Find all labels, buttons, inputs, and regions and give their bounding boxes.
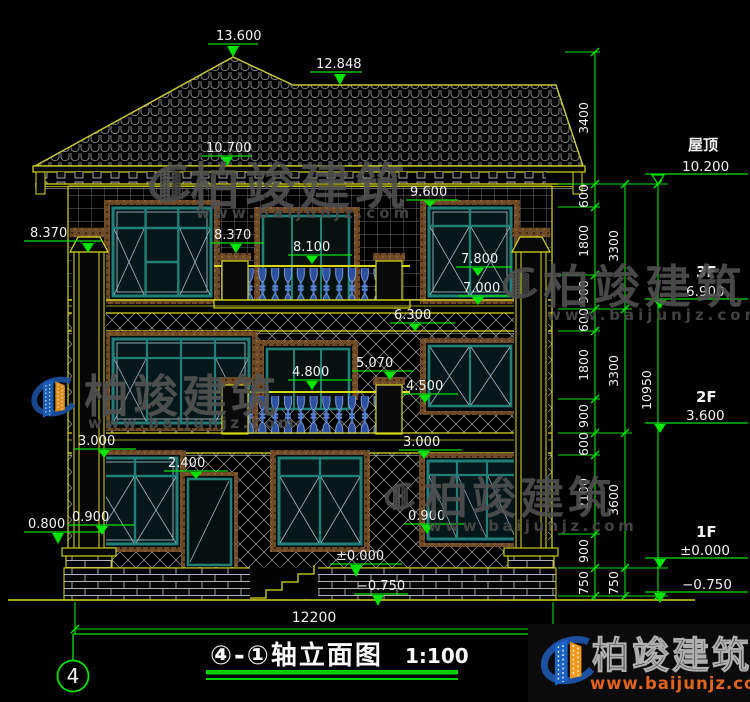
svg-text:3.000: 3.000 xyxy=(403,435,440,450)
svg-text:④-①轴立面图: ④-①轴立面图 xyxy=(210,640,383,671)
svg-text:8.370: 8.370 xyxy=(214,228,251,243)
level-1f: 1F ±0.000 xyxy=(645,523,748,568)
svg-text:0.900: 0.900 xyxy=(72,510,109,525)
svg-text:5.070: 5.070 xyxy=(356,356,393,371)
pedestal-cap-left xyxy=(62,548,116,556)
pier-cap xyxy=(219,253,251,261)
svg-text:1800: 1800 xyxy=(576,349,591,381)
svg-text:10.200: 10.200 xyxy=(682,159,729,175)
svg-text:3300: 3300 xyxy=(606,230,621,262)
overall-width-dimension: 12200 xyxy=(71,602,557,634)
cad-elevation-canvas[interactable]: 13.600 12.848 10.700 8.370 9.600 8.370 8… xyxy=(0,0,750,702)
brand-logo: 柏竣建筑 www.baijunjz.com xyxy=(528,624,750,702)
svg-text:www.baijunjz.com: www.baijunjz.com xyxy=(428,517,637,535)
elev-ridge: 12.848 xyxy=(310,57,362,85)
level-2f: 2F 3.600 xyxy=(645,388,748,433)
svg-text:7.800: 7.800 xyxy=(461,252,498,267)
title-underline-2 xyxy=(206,678,458,680)
svg-text:3300: 3300 xyxy=(606,355,621,387)
svg-text:2.400: 2.400 xyxy=(168,456,205,471)
brand-name: 柏竣建筑 xyxy=(592,634,750,677)
svg-text:2F: 2F xyxy=(696,388,717,406)
svg-text:4: 4 xyxy=(67,664,80,688)
svg-text:4.500: 4.500 xyxy=(406,379,443,394)
svg-text:9.600: 9.600 xyxy=(410,185,447,200)
entry-steps xyxy=(250,565,318,599)
svg-text:8.100: 8.100 xyxy=(293,240,330,255)
svg-text:3400: 3400 xyxy=(576,102,591,134)
level-roof: 屋顶 10.200 xyxy=(645,136,748,184)
svg-text:600: 600 xyxy=(576,184,591,208)
svg-text:12200: 12200 xyxy=(292,610,337,626)
svg-text:8.370: 8.370 xyxy=(30,226,67,241)
roof xyxy=(35,57,583,166)
svg-text:6.300: 6.300 xyxy=(394,308,431,323)
svg-text:600: 600 xyxy=(576,432,591,456)
svg-text:www.baijunjz.com: www.baijunjz.com xyxy=(547,306,750,324)
drawing-title: ④-①轴立面图 1:100 xyxy=(206,640,469,680)
svg-text:−0.750: −0.750 xyxy=(357,579,405,594)
elev-peak: 13.600 xyxy=(208,29,262,57)
svg-text:900: 900 xyxy=(576,404,591,428)
svg-text:7.000: 7.000 xyxy=(463,281,500,296)
svg-text:900: 900 xyxy=(576,539,591,563)
svg-text:1800: 1800 xyxy=(576,225,591,257)
svg-text:屋顶: 屋顶 xyxy=(688,136,718,154)
svg-text:10950: 10950 xyxy=(639,370,654,410)
pedestal-cap-right xyxy=(504,548,558,556)
pier-cap xyxy=(373,253,405,261)
svg-text:±0.000: ±0.000 xyxy=(680,543,730,559)
svg-text:0.800: 0.800 xyxy=(28,517,65,532)
svg-text:1F: 1F xyxy=(696,523,717,541)
window-2f-right xyxy=(420,338,520,415)
svg-text:4.800: 4.800 xyxy=(292,365,329,380)
eave-finial-left xyxy=(36,172,45,194)
svg-text:www.baijunjz.com: www.baijunjz.com xyxy=(196,204,413,222)
svg-text:±0.000: ±0.000 xyxy=(336,549,384,564)
window-1f-center xyxy=(270,450,370,552)
elev-foundation: −0.750 xyxy=(354,579,408,606)
svg-text:3.600: 3.600 xyxy=(686,408,725,424)
svg-text:12.848: 12.848 xyxy=(316,57,362,72)
svg-text:1:100: 1:100 xyxy=(405,644,469,668)
svg-text:750: 750 xyxy=(606,571,621,595)
watermark-top: 柏竣建筑 www.baijunjz.com xyxy=(152,158,414,222)
svg-text:10.700: 10.700 xyxy=(206,141,252,156)
level-foundation: −0.750 xyxy=(645,577,748,603)
title-underline xyxy=(206,670,458,675)
axis-bubble: 4 xyxy=(58,634,89,692)
floor-level-markers: 屋顶 10.200 3F 6.900 2F 3.600 1F ±0.000 −0… xyxy=(645,136,748,603)
brand-url: www.baijunjz.com xyxy=(590,674,750,693)
svg-text:750: 750 xyxy=(576,571,591,595)
entry-door-1f xyxy=(181,472,238,567)
svg-text:www.baijunjz.com: www.baijunjz.com xyxy=(88,414,297,432)
svg-text:13.600: 13.600 xyxy=(216,29,262,44)
svg-text:3.000: 3.000 xyxy=(78,434,115,449)
svg-text:−0.750: −0.750 xyxy=(682,577,732,593)
